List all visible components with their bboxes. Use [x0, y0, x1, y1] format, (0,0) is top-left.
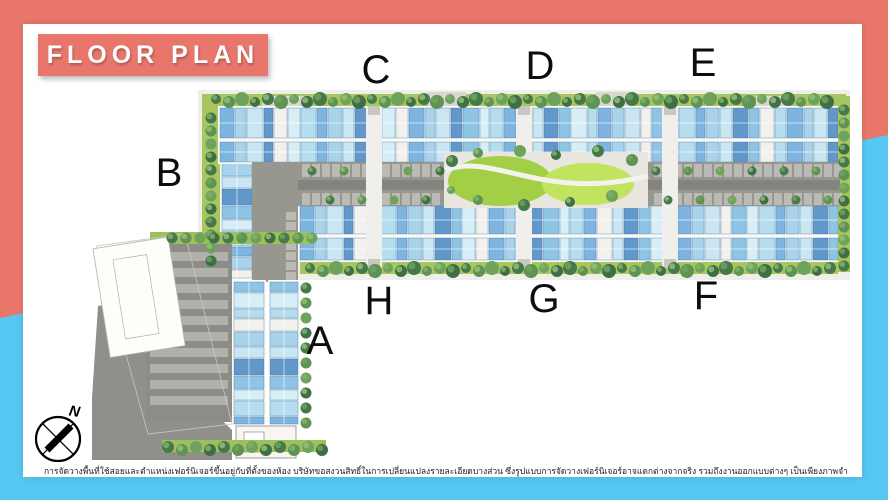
building-label-g: G [528, 279, 559, 319]
building-label-d: D [526, 46, 555, 86]
content-card [23, 24, 862, 477]
disclaimer-text: การจัดวางพื้นที่ใช้สอยและตำแหน่งเฟอร์นิเ… [44, 464, 848, 478]
compass: N [26, 400, 92, 470]
building-label-e: E [690, 43, 717, 83]
building-label-f: F [694, 276, 718, 316]
floor-plan-banner: FLOOR PLAN [38, 34, 268, 76]
compass-north-label: N [68, 402, 83, 421]
building-label-c: C [362, 50, 391, 90]
page-background: FLOOR PLAN A B C D E F G H N การจัดวางพื… [0, 0, 888, 500]
building-label-a: A [307, 321, 334, 361]
building-label-b: B [156, 153, 183, 193]
page-title: FLOOR PLAN [47, 41, 260, 70]
building-label-h: H [365, 281, 394, 321]
